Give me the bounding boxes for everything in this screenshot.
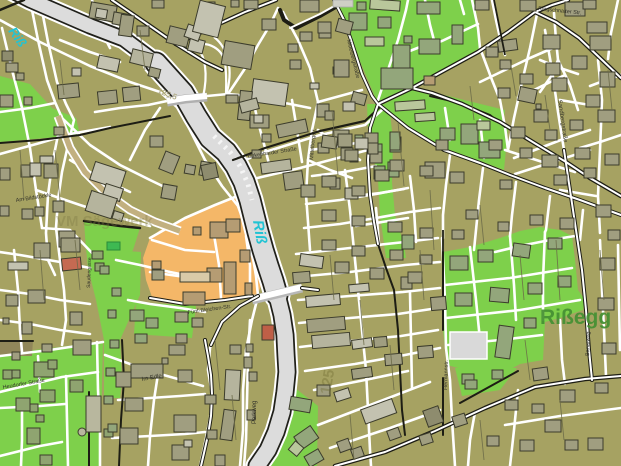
svg-text:Saudengasse: Saudengasse	[86, 257, 93, 288]
svg-text:Hermannstr.: Hermannstr.	[443, 359, 450, 390]
svg-text:VM Sägewerk: VM Sägewerk	[56, 213, 153, 230]
svg-text:Parkweg: Parkweg	[252, 401, 258, 424]
svg-text:Banatweg: Banatweg	[585, 331, 592, 356]
svg-text:Rißegg: Rißegg	[540, 306, 611, 329]
